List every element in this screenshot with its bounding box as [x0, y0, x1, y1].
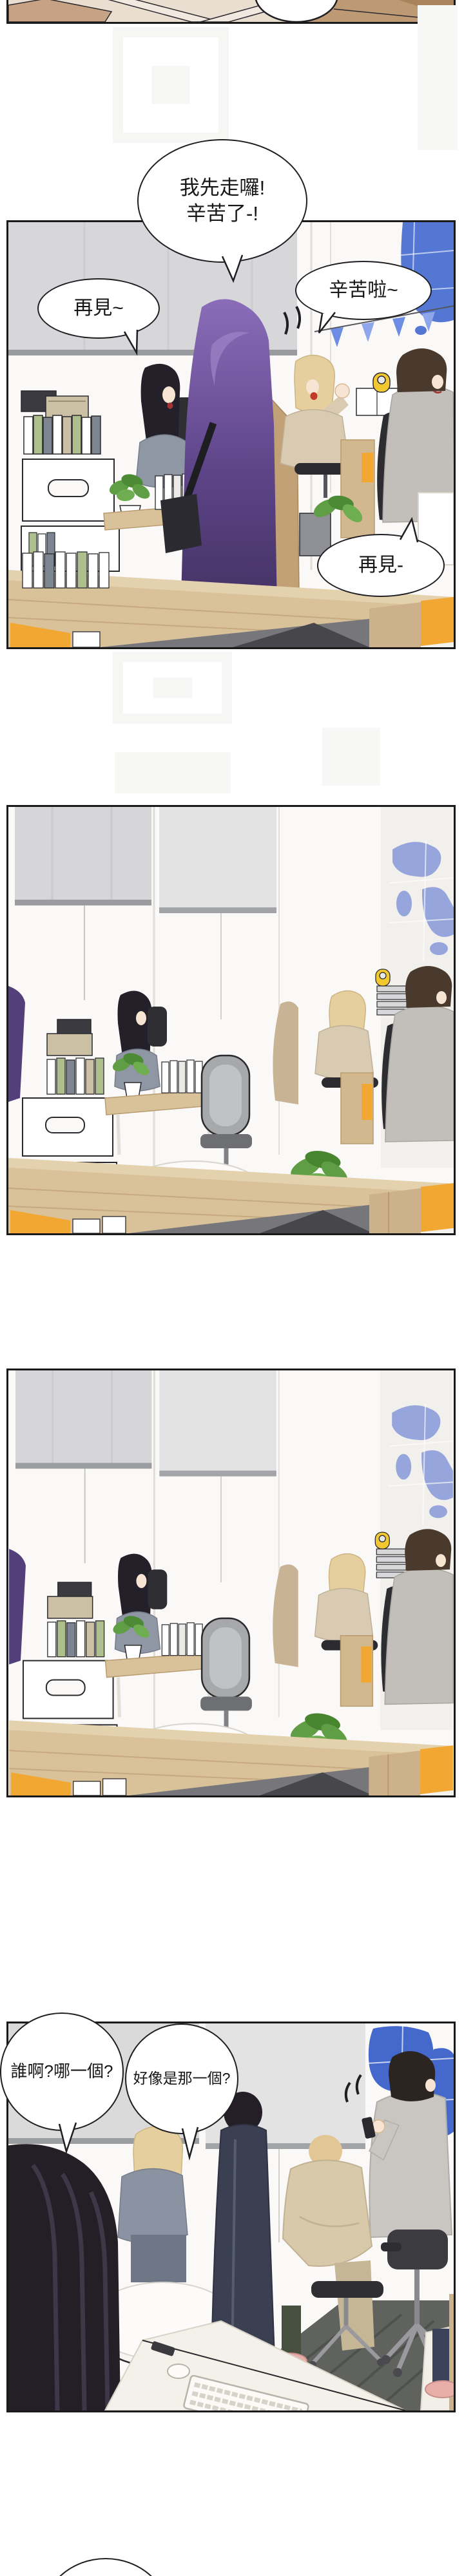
- bubble-tail: [216, 251, 255, 287]
- comic-panel-3: [6, 1368, 456, 1797]
- orange-accent: [362, 453, 373, 482]
- bubble-text: 好像是那一個?: [133, 2069, 231, 2088]
- comic-panel-2: [6, 805, 456, 1235]
- comic-panel-top-partial: [6, 0, 456, 24]
- speech-bubble-goodbye-small: 再見-: [317, 534, 445, 597]
- speech-bubble-seems-that-one: 好像是那一個?: [125, 2023, 238, 2134]
- minion-figurine: [376, 969, 390, 986]
- minion-figurine: [373, 373, 390, 392]
- bubble-text: 再見~: [73, 296, 124, 321]
- speech-bubble-next-partial: [41, 2558, 170, 2576]
- watermark-pattern: [418, 5, 458, 150]
- bubble-tail: [314, 307, 343, 338]
- watermark-pattern: [113, 27, 229, 143]
- orange-accent: [421, 597, 454, 646]
- pant-leg: [282, 2306, 301, 2358]
- panel-3-art: [8, 1370, 454, 1795]
- bubble-text: 再見-: [358, 553, 403, 578]
- mouse: [168, 2364, 189, 2378]
- webtoon-page: 我先走囉! 辛苦了-! 再見~ 辛苦啦~ 再見- 誰啊?哪一個? 好像是那一個?: [0, 0, 464, 2576]
- watermark-pattern: [322, 728, 380, 786]
- bubble-tail: [395, 514, 424, 547]
- binder-row: [162, 1060, 202, 1093]
- bubble-tail: [177, 2122, 204, 2163]
- pink-slipper: [425, 2381, 454, 2398]
- speech-bubble-who-which: 誰啊?哪一個?: [0, 2012, 124, 2131]
- watermark-pattern: [115, 752, 231, 793]
- panel-top-art: [8, 0, 454, 22]
- bubble-tail: [54, 2117, 82, 2157]
- pant-leg: [432, 2329, 449, 2385]
- bubble-text: 誰啊?哪一個?: [11, 2061, 113, 2082]
- bubble-text: 辛苦啦~: [329, 278, 398, 303]
- bubble-tail: [119, 325, 145, 359]
- panel-2-art: [8, 807, 454, 1233]
- speech-bubble-farewell: 我先走囉! 辛苦了-!: [137, 139, 307, 263]
- bubble-text: 我先走囉! 辛苦了-!: [180, 175, 266, 226]
- orange-accent: [362, 1084, 372, 1120]
- watermark-pattern: [113, 652, 232, 724]
